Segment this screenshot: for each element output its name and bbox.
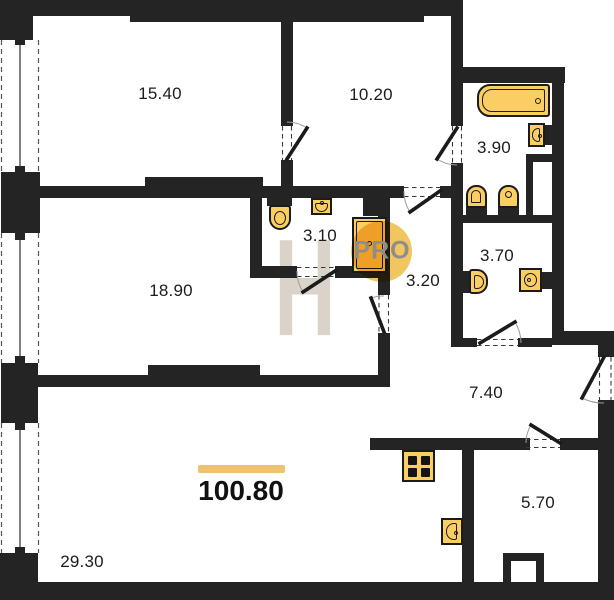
wall (1, 363, 38, 423)
floor-plan: H (0, 0, 614, 600)
wall (363, 198, 390, 216)
wall (0, 582, 614, 600)
wall (38, 375, 390, 387)
toilet-icon (466, 185, 487, 208)
bathtub-icon (477, 84, 550, 117)
wall (38, 186, 404, 198)
total-area-accent-bar (198, 465, 285, 473)
area-label-living-kitchen: 29.30 (60, 552, 104, 572)
wall (0, 553, 38, 600)
area-label-hallway: 7.40 (469, 383, 503, 403)
wall (0, 0, 463, 16)
area-label-bathroom-top: 3.90 (477, 138, 511, 158)
kitchen-sink-drain (454, 531, 458, 535)
kitchen-sink-icon (441, 518, 463, 545)
door (404, 188, 440, 213)
stove-burner (421, 456, 430, 465)
window-frame-tick (15, 547, 25, 554)
wall (281, 16, 293, 126)
sink-icon (519, 268, 542, 292)
window (2, 423, 39, 553)
area-label-bathroom-small: 3.70 (480, 246, 514, 266)
wall (544, 125, 552, 145)
door (526, 425, 560, 448)
stove-burner (408, 468, 417, 477)
watermark-brand: PRO (353, 237, 410, 266)
toilet-icon (469, 269, 488, 294)
door-swing-arc (404, 191, 410, 212)
wall (145, 177, 263, 186)
bathtub-drain (535, 98, 541, 104)
wall (518, 338, 552, 347)
wall (451, 338, 477, 347)
stove-burner (421, 468, 430, 477)
wall (370, 438, 530, 450)
door (371, 295, 389, 333)
entrance-door (582, 357, 611, 403)
window-frame-tick (15, 233, 25, 240)
wall (451, 16, 463, 126)
toilet-bowl (274, 211, 286, 225)
toilet-bowl (471, 190, 481, 203)
window (2, 233, 39, 363)
bidet-icon (498, 185, 519, 208)
wall (552, 67, 564, 345)
window-frame-tick (15, 38, 25, 45)
toilet-bowl (474, 275, 484, 289)
wall (1, 172, 40, 233)
wall (250, 266, 297, 278)
door-leaf (437, 128, 457, 159)
wall (451, 163, 463, 338)
wall (130, 16, 424, 22)
wall (0, 0, 33, 40)
door-leaf (287, 128, 307, 159)
wall (378, 333, 390, 387)
duct-niche-inner (511, 561, 536, 582)
sink-tap (527, 278, 531, 282)
wall (526, 154, 533, 223)
sink-icon (311, 198, 332, 215)
wall (462, 450, 474, 582)
door (477, 322, 521, 346)
door-leaf (582, 357, 604, 398)
sink-tap (538, 134, 542, 138)
wall (598, 400, 614, 600)
area-label-bedroom-left: 18.90 (149, 281, 193, 301)
window-frame-tick (15, 423, 25, 430)
stove-burner (408, 456, 417, 465)
door-leaf (480, 322, 515, 343)
sink-icon (528, 123, 545, 147)
door-leaf (410, 191, 440, 212)
bidet-drain (505, 191, 512, 198)
area-label-bedroom-top-left: 15.40 (138, 84, 182, 104)
door (437, 126, 462, 165)
sink-tap (320, 201, 324, 205)
wall (281, 160, 293, 198)
wall (598, 345, 614, 357)
total-area-label: 100.80 (198, 475, 284, 507)
door-leaf (371, 298, 384, 332)
wall (560, 438, 614, 450)
area-label-shower-wc: 3.10 (303, 226, 337, 246)
window (2, 40, 39, 172)
door (283, 122, 308, 160)
door-leaf (531, 425, 560, 443)
wall (451, 215, 553, 223)
toilet-icon (269, 205, 291, 230)
door-swing-arc (371, 296, 384, 298)
wall (148, 365, 260, 375)
wall (541, 272, 552, 289)
wall (552, 331, 614, 345)
area-label-bedroom-top-right: 10.20 (349, 85, 393, 105)
window-frame-tick (15, 356, 25, 363)
stove-icon (402, 450, 435, 482)
window-frame-tick (15, 166, 25, 173)
area-label-inner-hall: 3.20 (406, 271, 440, 291)
area-label-pantry: 5.70 (521, 493, 555, 513)
wall (463, 67, 565, 83)
